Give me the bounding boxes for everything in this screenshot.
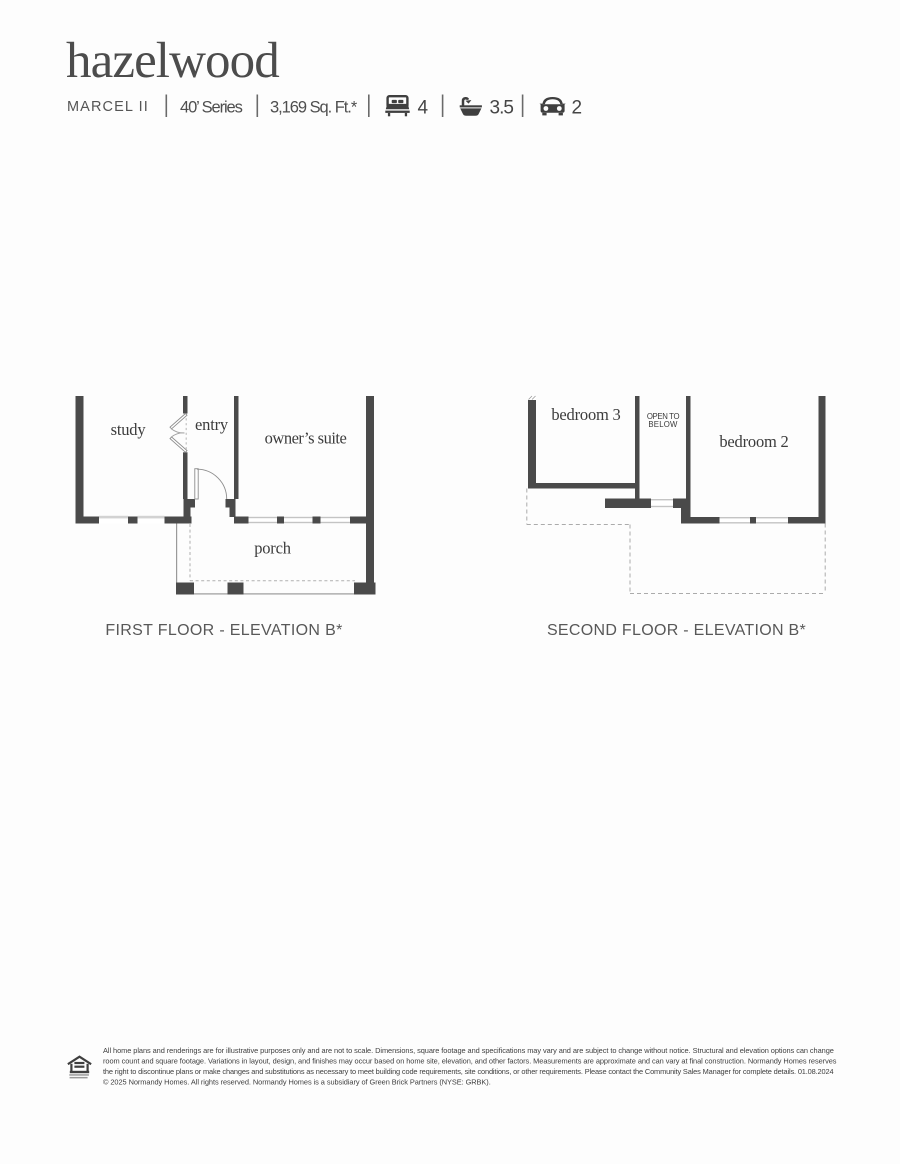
- svg-text:porch: porch: [254, 539, 292, 558]
- svg-text:© 2025 Normandy Homes. All rig: © 2025 Normandy Homes. All rights reserv…: [103, 1077, 491, 1086]
- svg-text:study: study: [111, 420, 147, 439]
- svg-text:entry: entry: [195, 415, 229, 434]
- svg-text:room count and square footage.: room count and square footage. Variation…: [103, 1057, 837, 1066]
- svg-text:owner’s suite: owner’s suite: [265, 429, 347, 448]
- svg-text:hazelwood: hazelwood: [66, 33, 279, 89]
- svg-text:4: 4: [418, 98, 429, 119]
- svg-text:40’ Series: 40’ Series: [180, 99, 243, 117]
- svg-text:bedroom 2: bedroom 2: [719, 432, 788, 451]
- svg-text:3,169 Sq. Ft.*: 3,169 Sq. Ft.*: [270, 99, 358, 117]
- svg-text:SECOND FLOOR - ELEVATION B*: SECOND FLOOR - ELEVATION B*: [547, 622, 806, 639]
- svg-text:the right to discontinue plans: the right to discontinue plans or make c…: [103, 1067, 833, 1076]
- svg-text:MARCEL II: MARCEL II: [67, 99, 149, 115]
- svg-text:FIRST FLOOR - ELEVATION B*: FIRST FLOOR - ELEVATION B*: [105, 622, 342, 639]
- svg-text:2: 2: [572, 98, 583, 119]
- svg-text:BELOW: BELOW: [648, 420, 678, 429]
- svg-text:3.5: 3.5: [490, 98, 514, 119]
- svg-text:All home plans and renderings: All home plans and renderings are for il…: [103, 1046, 834, 1055]
- svg-text:bedroom 3: bedroom 3: [551, 405, 620, 424]
